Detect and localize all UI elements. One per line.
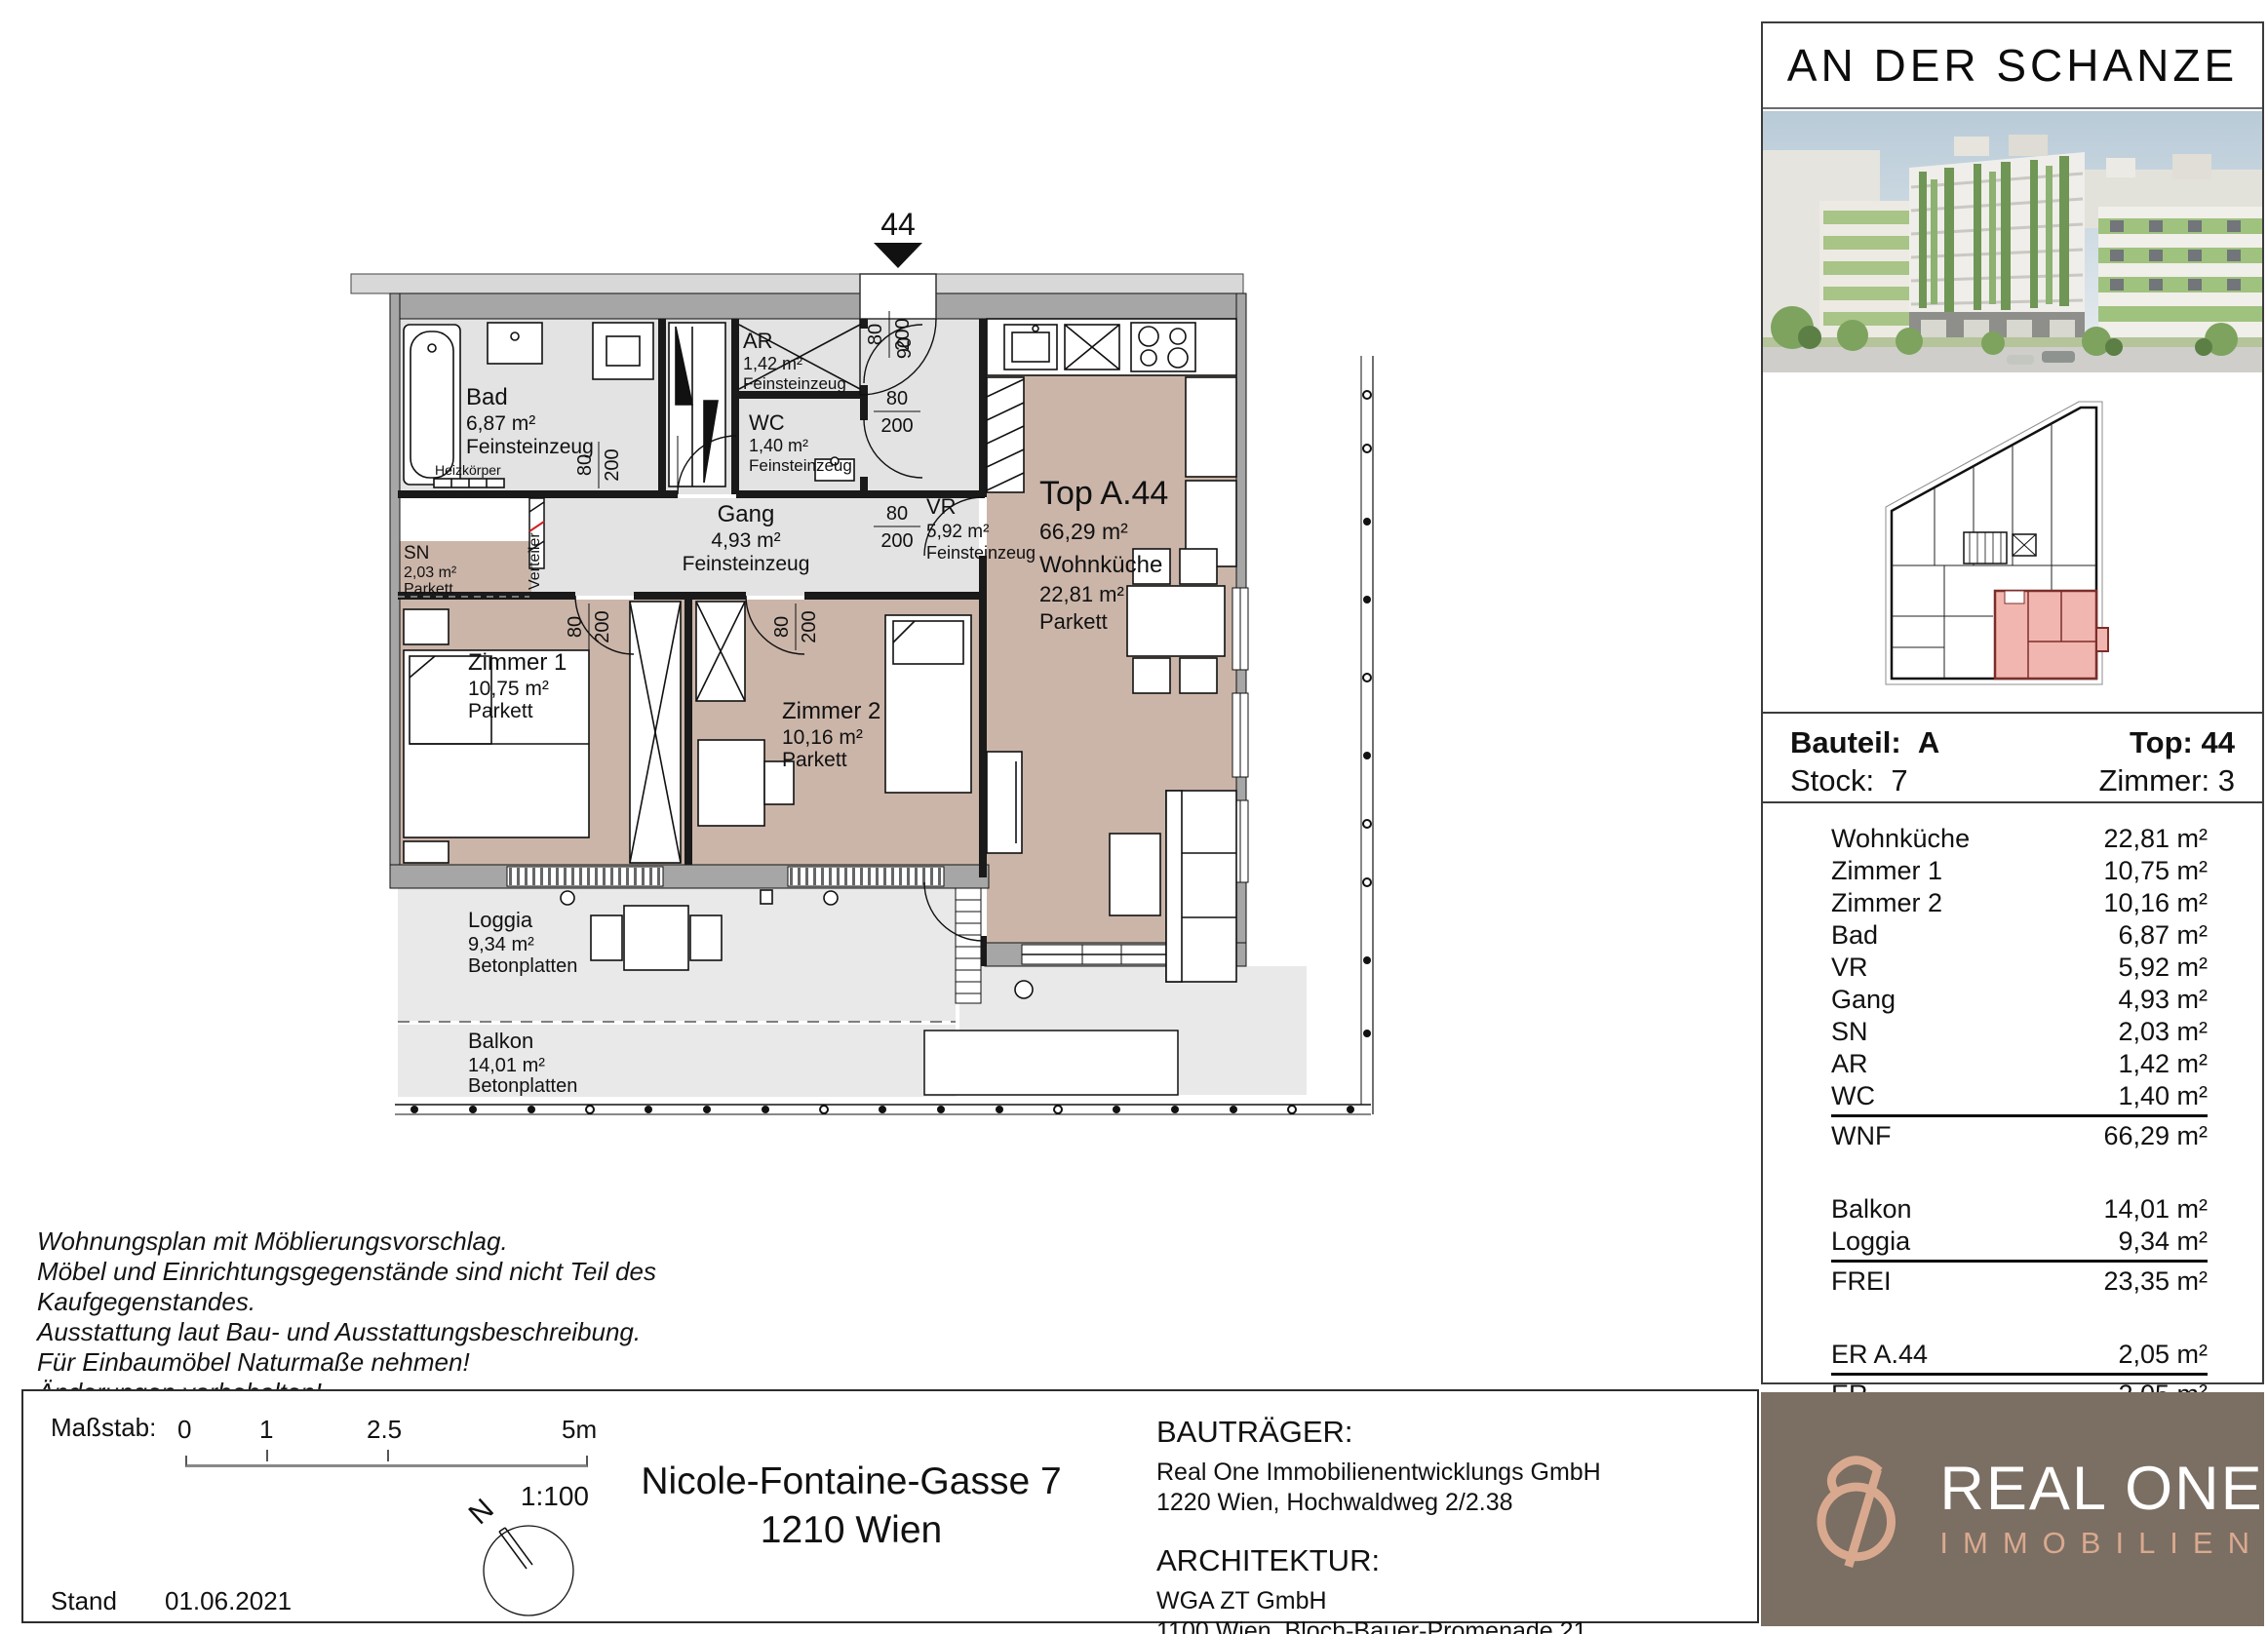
svg-text:5,92 m²: 5,92 m²: [926, 522, 989, 542]
entrance-marker: 44: [874, 210, 922, 268]
table-row: Wohnküche22,81 m²: [1831, 823, 2208, 855]
svg-text:10,75 m²: 10,75 m²: [468, 678, 549, 700]
svg-text:1,40 m²: 1,40 m²: [749, 436, 808, 455]
svg-text:Parkett: Parkett: [782, 749, 847, 771]
svg-text:80: 80: [886, 503, 908, 525]
svg-text:200: 200: [880, 530, 913, 552]
disclaimer-line: Möbel und Einrichtungsgegenstände sind n…: [37, 1257, 656, 1287]
sum-rule: [1831, 1260, 2208, 1263]
top-value: 44: [2202, 725, 2235, 759]
svg-text:200: 200: [592, 610, 613, 642]
table-row: Gang4,93 m²: [1831, 984, 2208, 1016]
disclaimer-line: Für Einbaumöbel Naturmaße nehmen!: [37, 1347, 656, 1378]
svg-text:1,42 m²: 1,42 m²: [743, 354, 802, 373]
stand-label: Stand: [51, 1586, 117, 1616]
svg-text:Bad: Bad: [466, 384, 508, 410]
svg-text:Betonplatten: Betonplatten: [468, 955, 577, 977]
svg-text:Feinsteinzeug: Feinsteinzeug: [926, 543, 1036, 563]
disclaimer-line: Ausstattung laut Bau- und Ausstattungsbe…: [37, 1317, 656, 1347]
table-row: VR5,92 m²: [1831, 952, 2208, 984]
brand-name: REAL ONE: [1939, 1458, 2264, 1520]
disclaimer-note: Wohnungsplan mit Möblierungsvorschlag. M…: [37, 1226, 656, 1408]
svg-text:Gang: Gang: [718, 501, 775, 527]
table-row: Balkon14,01 m²: [1831, 1193, 2208, 1225]
svg-text:Loggia: Loggia: [468, 908, 533, 932]
rendering-illustration: [1763, 111, 2262, 372]
scale-tick-5m: 5m: [562, 1415, 597, 1445]
svg-text:22,81 m²: 22,81 m²: [1039, 582, 1124, 606]
table-row: Zimmer 110,75 m²: [1831, 855, 2208, 887]
table-row-total: FREI23,35 m²: [1831, 1265, 2208, 1298]
address-street: Nicole-Fontaine-Gasse 7: [641, 1458, 1061, 1506]
north-letter: N: [463, 1497, 500, 1531]
svg-text:Heizkörper: Heizkörper: [435, 462, 501, 478]
architect-heading: ARCHITEKTUR:: [1156, 1543, 1757, 1578]
svg-text:Feinsteinzeug: Feinsteinzeug: [466, 436, 594, 458]
top-pair: Top: 44: [2130, 723, 2235, 761]
stand-date: 01.06.2021: [165, 1586, 292, 1616]
developer-name: Real One Immobilienentwicklungs GmbH: [1156, 1458, 1757, 1488]
svg-text:Zimmer 2: Zimmer 2: [782, 698, 880, 724]
svg-text:80: 80: [886, 388, 908, 409]
architect-name: WGA ZT GmbH: [1156, 1586, 1757, 1616]
architect-address: 1100 Wien, Bloch-Bauer-Promenade 21: [1156, 1616, 1757, 1634]
scale-tick-1: 1: [259, 1415, 273, 1445]
svg-text:Parkett: Parkett: [1039, 609, 1108, 634]
table-row: WC1,40 m²: [1831, 1080, 2208, 1112]
svg-text:Feinsteinzeug: Feinsteinzeug: [749, 456, 852, 475]
svg-text:WC: WC: [749, 410, 785, 435]
developer-heading: BAUTRÄGER:: [1156, 1415, 1757, 1450]
top-label: Top:: [2130, 723, 2193, 761]
svg-text:Verteiler: Verteiler: [527, 532, 543, 590]
entrance-number: 44: [880, 210, 916, 242]
floor-plan: 44 80200 80200 90 80200 80200 80200: [341, 210, 1482, 1155]
table-row: Loggia9,34 m²: [1831, 1225, 2208, 1258]
svg-text:VR: VR: [926, 494, 957, 519]
svg-text:SN: SN: [404, 543, 429, 564]
scale-tick-2-5: 2.5: [367, 1415, 402, 1445]
bauteil-label: Bauteil:: [1790, 723, 1901, 761]
table-row: Bad6,87 m²: [1831, 919, 2208, 952]
svg-text:Wohnküche: Wohnküche: [1039, 552, 1162, 578]
svg-text:66,29 m²: 66,29 m²: [1039, 519, 1128, 544]
disclaimer-line: Wohnungsplan mit Möblierungsvorschlag.: [37, 1226, 656, 1257]
building-rendering: [1763, 111, 2262, 372]
plan-sheet: 44 80200 80200 90 80200 80200 80200: [0, 0, 2268, 1634]
svg-text:200: 200: [799, 610, 820, 642]
contacts-box: BAUTRÄGER: Real One Immobilienentwicklun…: [1102, 1389, 1759, 1623]
svg-text:4,93 m²: 4,93 m²: [711, 529, 780, 552]
project-title: AN DER SCHANZE: [1787, 39, 2238, 92]
svg-text:90: 90: [894, 337, 916, 359]
scale-tick-0: 0: [177, 1415, 191, 1445]
level-overview: [1763, 372, 2262, 712]
brand-wordmark: REAL ONE IMMOBILIEN: [1939, 1458, 2264, 1561]
svg-text:Betonplatten: Betonplatten: [468, 1075, 577, 1097]
svg-text:AR: AR: [743, 329, 773, 353]
svg-text:9,34 m²: 9,34 m²: [468, 934, 534, 955]
table-row-total: WNF66,29 m²: [1831, 1120, 2208, 1152]
address-box: Nicole-Fontaine-Gasse 7 1210 Wien: [601, 1389, 1104, 1623]
stock-value: 7: [1891, 763, 1907, 798]
svg-text:10,16 m²: 10,16 m²: [782, 726, 863, 749]
svg-text:Feinsteinzeug: Feinsteinzeug: [743, 374, 846, 393]
sum-rule: [1831, 1114, 2208, 1117]
table-row: ER A.442,05 m²: [1831, 1339, 2208, 1371]
svg-text:Zimmer 1: Zimmer 1: [468, 649, 567, 676]
svg-text:Parkett: Parkett: [404, 581, 453, 598]
real-one-logo-mark: [1806, 1436, 1912, 1582]
svg-text:80: 80: [865, 324, 886, 345]
svg-text:80: 80: [565, 616, 586, 638]
svg-text:80: 80: [771, 616, 793, 638]
svg-text:Balkon: Balkon: [468, 1029, 533, 1053]
zimmer-value: 3: [2218, 763, 2235, 798]
svg-text:14,01 m²: 14,01 m²: [468, 1055, 545, 1076]
project-title-box: AN DER SCHANZE: [1763, 23, 2262, 109]
sidebar: AN DER SCHANZE: [1761, 21, 2264, 1384]
level-overview-map: [1818, 386, 2208, 698]
svg-text:Top A.44: Top A.44: [1039, 475, 1168, 512]
developer-address: 1220 Wien, Hochwaldweg 2/2.38: [1156, 1488, 1757, 1518]
svg-text:200: 200: [602, 448, 623, 481]
zimmer-label: Zimmer:: [2098, 761, 2209, 799]
area-table: Wohnküche22,81 m² Zimmer 110,75 m² Zimme…: [1763, 823, 2262, 1411]
svg-text:6,87 m²: 6,87 m²: [466, 412, 535, 435]
sum-rule: [1831, 1373, 2208, 1376]
svg-text:Parkett: Parkett: [468, 700, 533, 722]
brand-logo-box: REAL ONE IMMOBILIEN: [1761, 1392, 2264, 1626]
address-city: 1210 Wien: [761, 1506, 942, 1555]
zimmer-pair: Zimmer: 3: [2098, 761, 2235, 799]
highlighted-unit: [1995, 591, 2108, 679]
svg-text:2,03 m²: 2,03 m²: [404, 564, 457, 581]
unit-info-box: Bauteil: A Top: 44 Stock: 7 Zimmer: 3: [1763, 712, 2262, 803]
bauteil-pair: Bauteil: A: [1790, 723, 1939, 761]
disclaimer-line: Kaufgegenstandes.: [37, 1287, 656, 1317]
table-row: AR1,42 m²: [1831, 1048, 2208, 1080]
scale-label: Maßstab:: [51, 1413, 156, 1443]
scale-box: Maßstab: 0 1 2.5 5m 1:100 Stand 01.06.20…: [21, 1389, 603, 1623]
svg-text:200: 200: [880, 415, 913, 437]
stock-label: Stock:: [1790, 761, 1874, 799]
brand-subtitle: IMMOBILIEN: [1939, 1526, 2264, 1561]
table-row: SN2,03 m²: [1831, 1016, 2208, 1048]
bauteil-value: A: [1918, 725, 1939, 759]
stock-pair: Stock: 7: [1790, 761, 1908, 799]
svg-text:Feinsteinzeug: Feinsteinzeug: [683, 553, 810, 575]
north-compass: N: [452, 1497, 589, 1623]
table-row: Zimmer 210,16 m²: [1831, 887, 2208, 919]
